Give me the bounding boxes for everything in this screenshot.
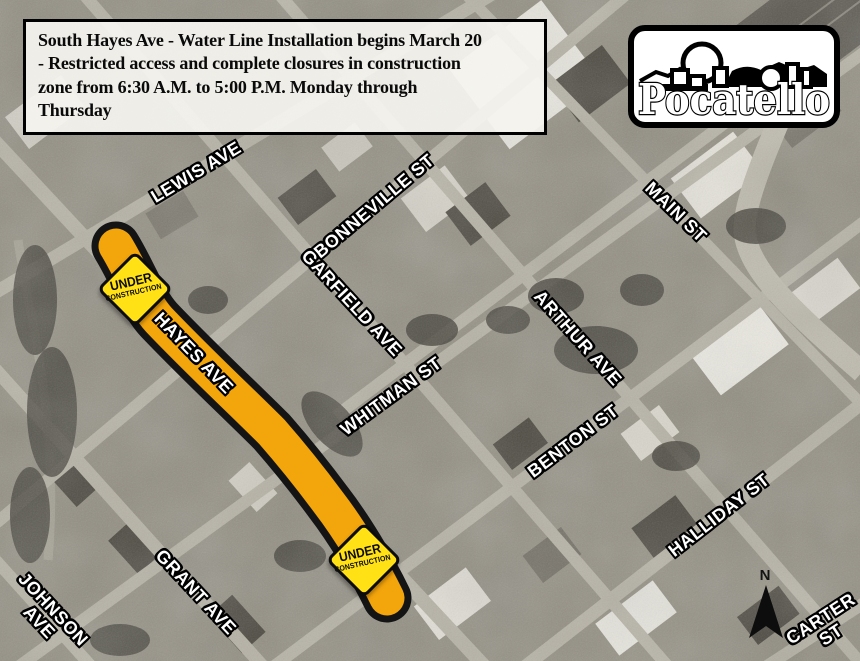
construction-notice: South Hayes Ave - Water Line Installatio… [23, 19, 547, 135]
north-indicator: N [748, 568, 784, 644]
north-arrow-icon [748, 585, 784, 639]
logo-wordmark: Pocatello [638, 75, 830, 124]
north-label: N [746, 568, 784, 583]
map-canvas: LEWIS AVE BONNEVILLE ST GARFIELD AVE MAI… [0, 0, 860, 661]
construction-notice-text: South Hayes Ave - Water Line Installatio… [38, 29, 534, 123]
pocatello-logo: Pocatello [628, 25, 840, 128]
